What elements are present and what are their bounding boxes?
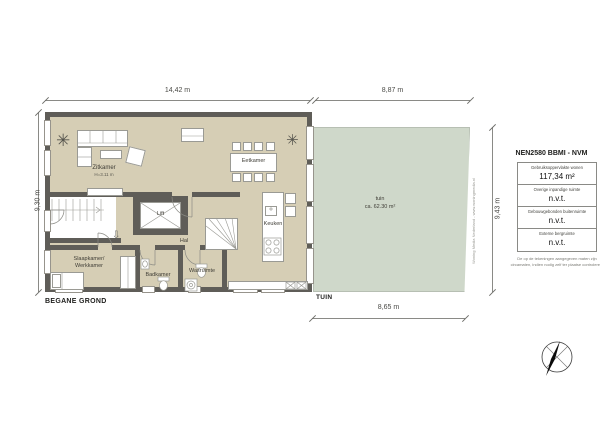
floorplan-canvas: 14,42 m 8,87 m 9,30 m 9,43 m 8,65 m tuin… (0, 0, 600, 421)
bed-pillow (52, 274, 61, 288)
window (188, 286, 201, 293)
legend-row: Gebruiksoppervlakte wonen 117,34 m² (518, 163, 596, 185)
room-label-keuken: Keuken (258, 221, 288, 228)
plant-icon: ✳ (56, 131, 70, 151)
room-label-werkkamer: Werkkamer (56, 263, 122, 270)
dimension-line (45, 100, 310, 101)
dimension-tick (35, 289, 42, 296)
interior-wall (49, 238, 121, 243)
entry-arrow-icon: ⇩ (112, 230, 120, 241)
dining-chair (243, 142, 252, 151)
room-label-badkamer: Badkamer (138, 272, 178, 279)
desk (181, 128, 204, 142)
dining-chair (266, 173, 275, 182)
room-label-slaapkamer: Slaapkamer/ (56, 256, 122, 263)
dimension-top-left: 14,42 m (45, 87, 310, 94)
dining-chair (266, 142, 275, 151)
room-label-eetkamer: Eetkamer (230, 158, 277, 165)
sofa (77, 130, 128, 147)
compass-rose (536, 336, 580, 380)
legend-row-value: n.v.t. (518, 192, 596, 203)
legend-row: Gebouwgebonden buitenruimte n.v.t. (518, 207, 596, 229)
dining-chair (254, 173, 263, 182)
interior-wall (49, 245, 98, 250)
garden-title: TUIN (316, 294, 332, 301)
window (44, 120, 51, 146)
room-label-hal: Hal (169, 238, 199, 245)
dimension-tick (467, 97, 474, 104)
legend-footnote: De op de tekeningen aangegeven maten zij… (510, 256, 600, 267)
legend-row-value: n.v.t. (518, 214, 596, 225)
window (306, 248, 314, 284)
kitchen-appliance (285, 193, 296, 204)
dimension-line (312, 318, 465, 319)
dimension-line (492, 127, 493, 292)
window (306, 164, 314, 202)
sofa-corner (77, 147, 92, 167)
watermark-credit: Woning Media Nederland - www.woningmedia… (471, 178, 476, 264)
winder-stairs (205, 218, 238, 250)
legend-title: NEN2580 BBMI - NVM (503, 150, 600, 157)
legend-row-value: 117,34 m² (518, 170, 596, 181)
legend-row-label: Overige inpandige ruimte (518, 185, 596, 192)
garden-area-value: ca. 62.30 m² (315, 204, 445, 211)
dimension-right: 9,43 m (495, 180, 502, 238)
legend-table: Gebruiksoppervlakte wonen 117,34 m² Over… (517, 162, 597, 252)
dining-chair (243, 173, 252, 182)
window (142, 286, 155, 293)
kitchen-appliance (285, 206, 296, 217)
legend-row-label: Gebouwgebonden buitenruimte (518, 207, 596, 214)
garden-door-opening (306, 206, 314, 244)
dimension-bottom: 8,65 m (312, 304, 465, 311)
front-door-opening (44, 210, 51, 232)
garden-label: tuin (315, 196, 445, 203)
legend-row-label: Externe bergruimte (518, 229, 596, 236)
dimension-tick (462, 315, 469, 322)
tv-cabinet (87, 188, 123, 196)
room-height-note: H=3.11 m (72, 172, 136, 177)
kitchen-counter (228, 281, 308, 290)
legend-row-value: n.v.t. (518, 236, 596, 247)
floor-title: BEGANE GROND (45, 298, 107, 305)
interior-wall (192, 192, 240, 197)
dining-chair (232, 173, 241, 182)
legend-row: Overige inpandige ruimte n.v.t. (518, 185, 596, 207)
dimension-line (315, 100, 470, 101)
dining-chair (232, 142, 241, 151)
dining-chair (254, 142, 263, 151)
window (44, 150, 51, 176)
dimension-tick (489, 289, 496, 296)
plant-icon: ✳ (286, 131, 299, 149)
stairwell-floor (50, 197, 116, 238)
wardrobe (120, 256, 136, 289)
window (44, 250, 51, 274)
room-label-wasruimte: Wasruimte (181, 268, 223, 275)
dimension-top-right: 8,87 m (315, 87, 470, 94)
coffee-table (100, 150, 122, 159)
dimension-left: 9,30 m (35, 172, 42, 230)
legend-row: Externe bergruimte n.v.t. (518, 229, 596, 251)
room-label-lift: Lift (140, 211, 181, 218)
legend-row-label: Gebruiksoppervlakte wonen (518, 163, 596, 170)
kitchen-sink (265, 206, 277, 216)
window (306, 126, 314, 160)
